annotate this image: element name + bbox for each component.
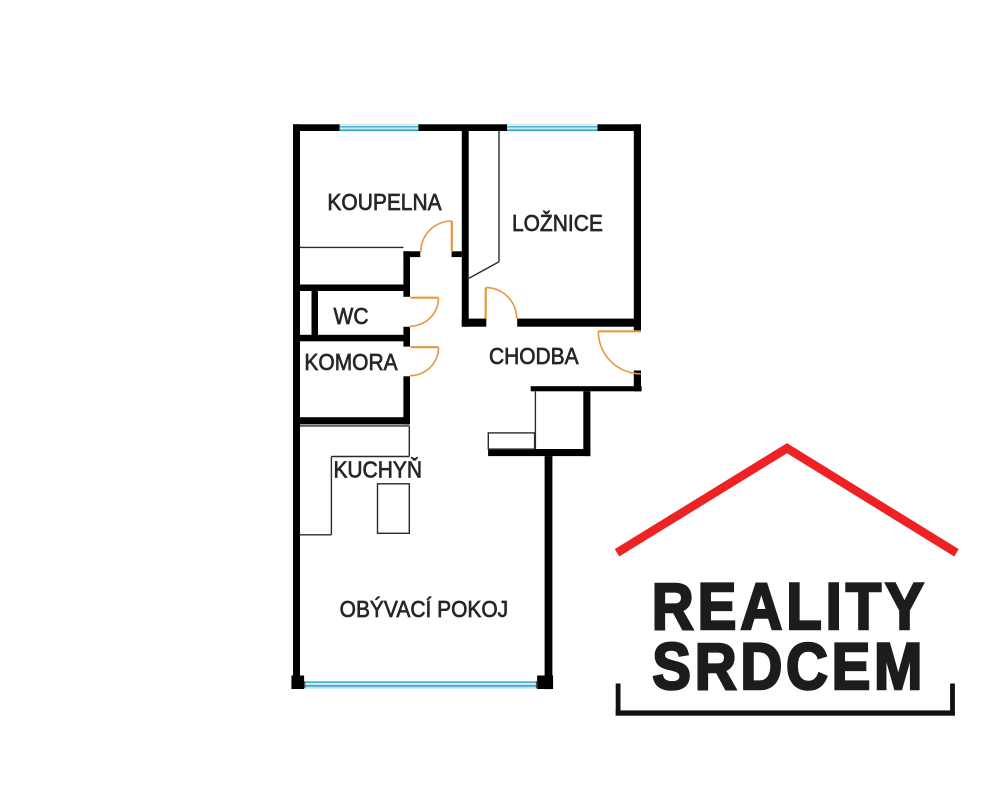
svg-text:WC: WC [334,303,369,329]
svg-text:OBÝVACÍ POKOJ: OBÝVACÍ POKOJ [340,596,509,622]
svg-text:LOŽNICE: LOŽNICE [512,210,603,236]
svg-text:CHODBA: CHODBA [489,343,579,369]
svg-text:KOMORA: KOMORA [304,349,397,375]
svg-text:KUCHYŇ: KUCHYŇ [333,457,422,483]
svg-text:KOUPELNA: KOUPELNA [327,189,441,215]
svg-text:SRDCEM: SRDCEM [652,631,926,704]
